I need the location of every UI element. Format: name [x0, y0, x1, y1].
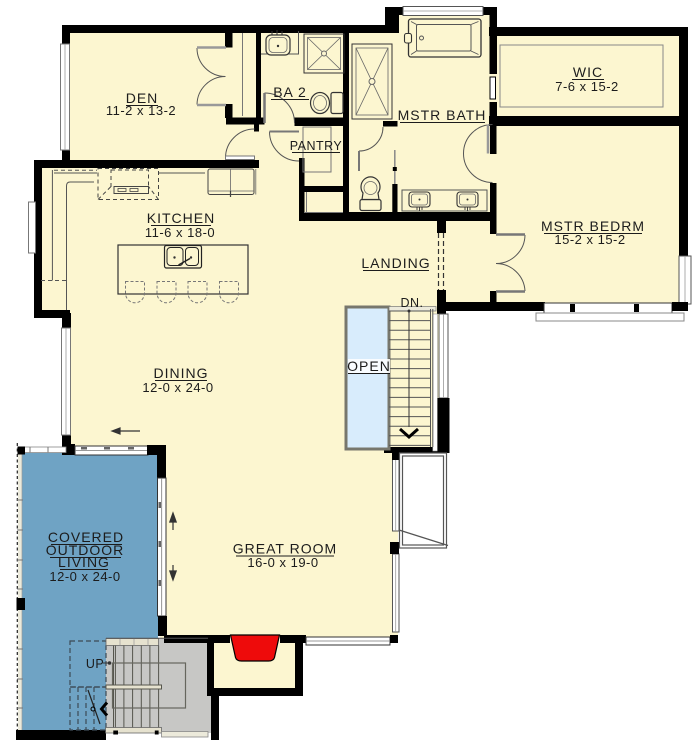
svg-text:12-0 x 24-0: 12-0 x 24-0: [49, 569, 120, 584]
svg-text:KITCHEN: KITCHEN: [147, 210, 215, 226]
svg-text:7-6 x 15-2: 7-6 x 15-2: [555, 79, 619, 94]
svg-text:OPEN: OPEN: [347, 358, 391, 374]
svg-text:11-2 x 13-2: 11-2 x 13-2: [106, 103, 176, 118]
svg-text:BA 2: BA 2: [273, 84, 307, 100]
svg-text:16-0 x 19-0: 16-0 x 19-0: [247, 555, 318, 570]
svg-text:UP: UP: [86, 657, 104, 671]
svg-text:LIVING: LIVING: [58, 554, 110, 570]
svg-text:15-2 x 15-2: 15-2 x 15-2: [554, 232, 625, 247]
svg-text:MSTR BATH: MSTR BATH: [398, 107, 487, 123]
svg-text:12-0 x 24-0: 12-0 x 24-0: [142, 380, 213, 395]
svg-text:PANTRY: PANTRY: [290, 139, 343, 153]
svg-text:LANDING: LANDING: [361, 255, 430, 271]
svg-text:11-6 x 18-0: 11-6 x 18-0: [145, 225, 215, 240]
svg-text:WIC: WIC: [573, 64, 603, 80]
svg-text:DINING: DINING: [154, 365, 209, 381]
svg-text:DN.: DN.: [400, 296, 423, 310]
